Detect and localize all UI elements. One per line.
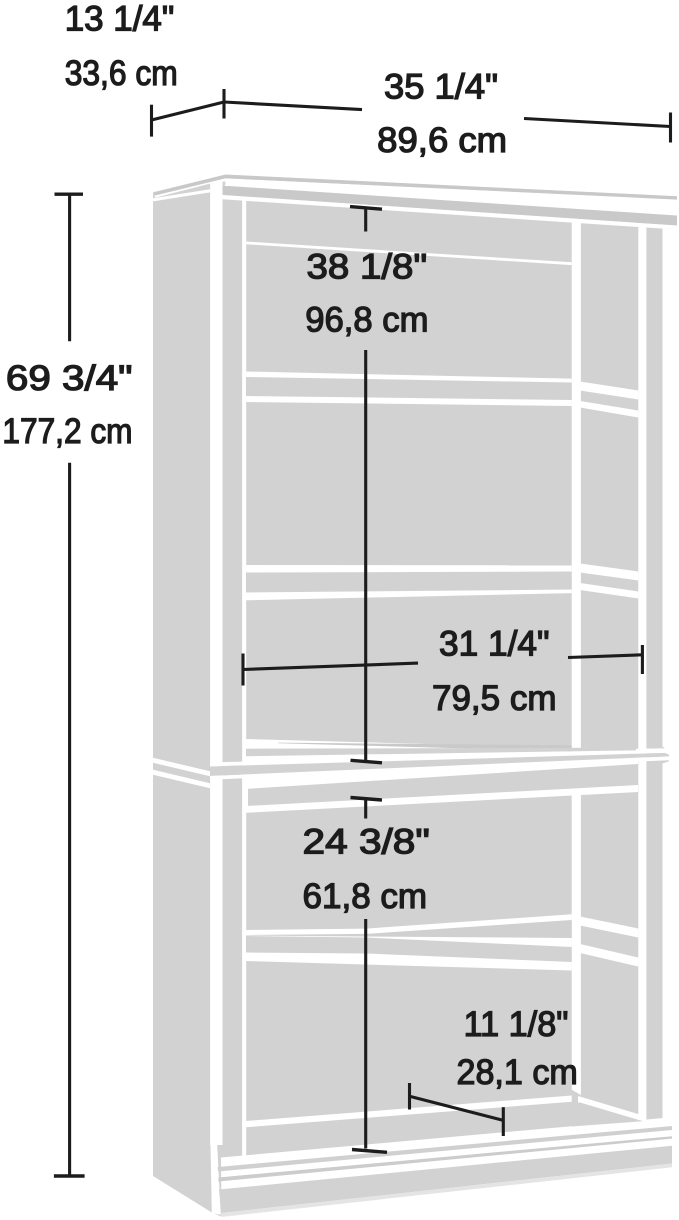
svg-text:89,6 cm: 89,6 cm (377, 121, 507, 160)
svg-text:35 1/4": 35 1/4" (384, 68, 498, 107)
svg-text:38 1/8": 38 1/8" (307, 247, 428, 286)
svg-text:96,8 cm: 96,8 cm (305, 301, 428, 340)
svg-text:24 3/8": 24 3/8" (303, 823, 430, 862)
svg-text:79,5 cm: 79,5 cm (432, 679, 557, 718)
svg-text:11 1/8": 11 1/8" (464, 1005, 569, 1044)
svg-text:177,2 cm: 177,2 cm (2, 412, 132, 451)
svg-text:31 1/4": 31 1/4" (439, 625, 550, 664)
svg-text:13 1/4": 13 1/4" (65, 0, 175, 39)
svg-text:28,1 cm: 28,1 cm (457, 1053, 578, 1092)
svg-text:33,6 cm: 33,6 cm (65, 54, 178, 93)
svg-text:69 3/4": 69 3/4" (6, 359, 133, 398)
svg-text:61,8 cm: 61,8 cm (303, 877, 428, 916)
